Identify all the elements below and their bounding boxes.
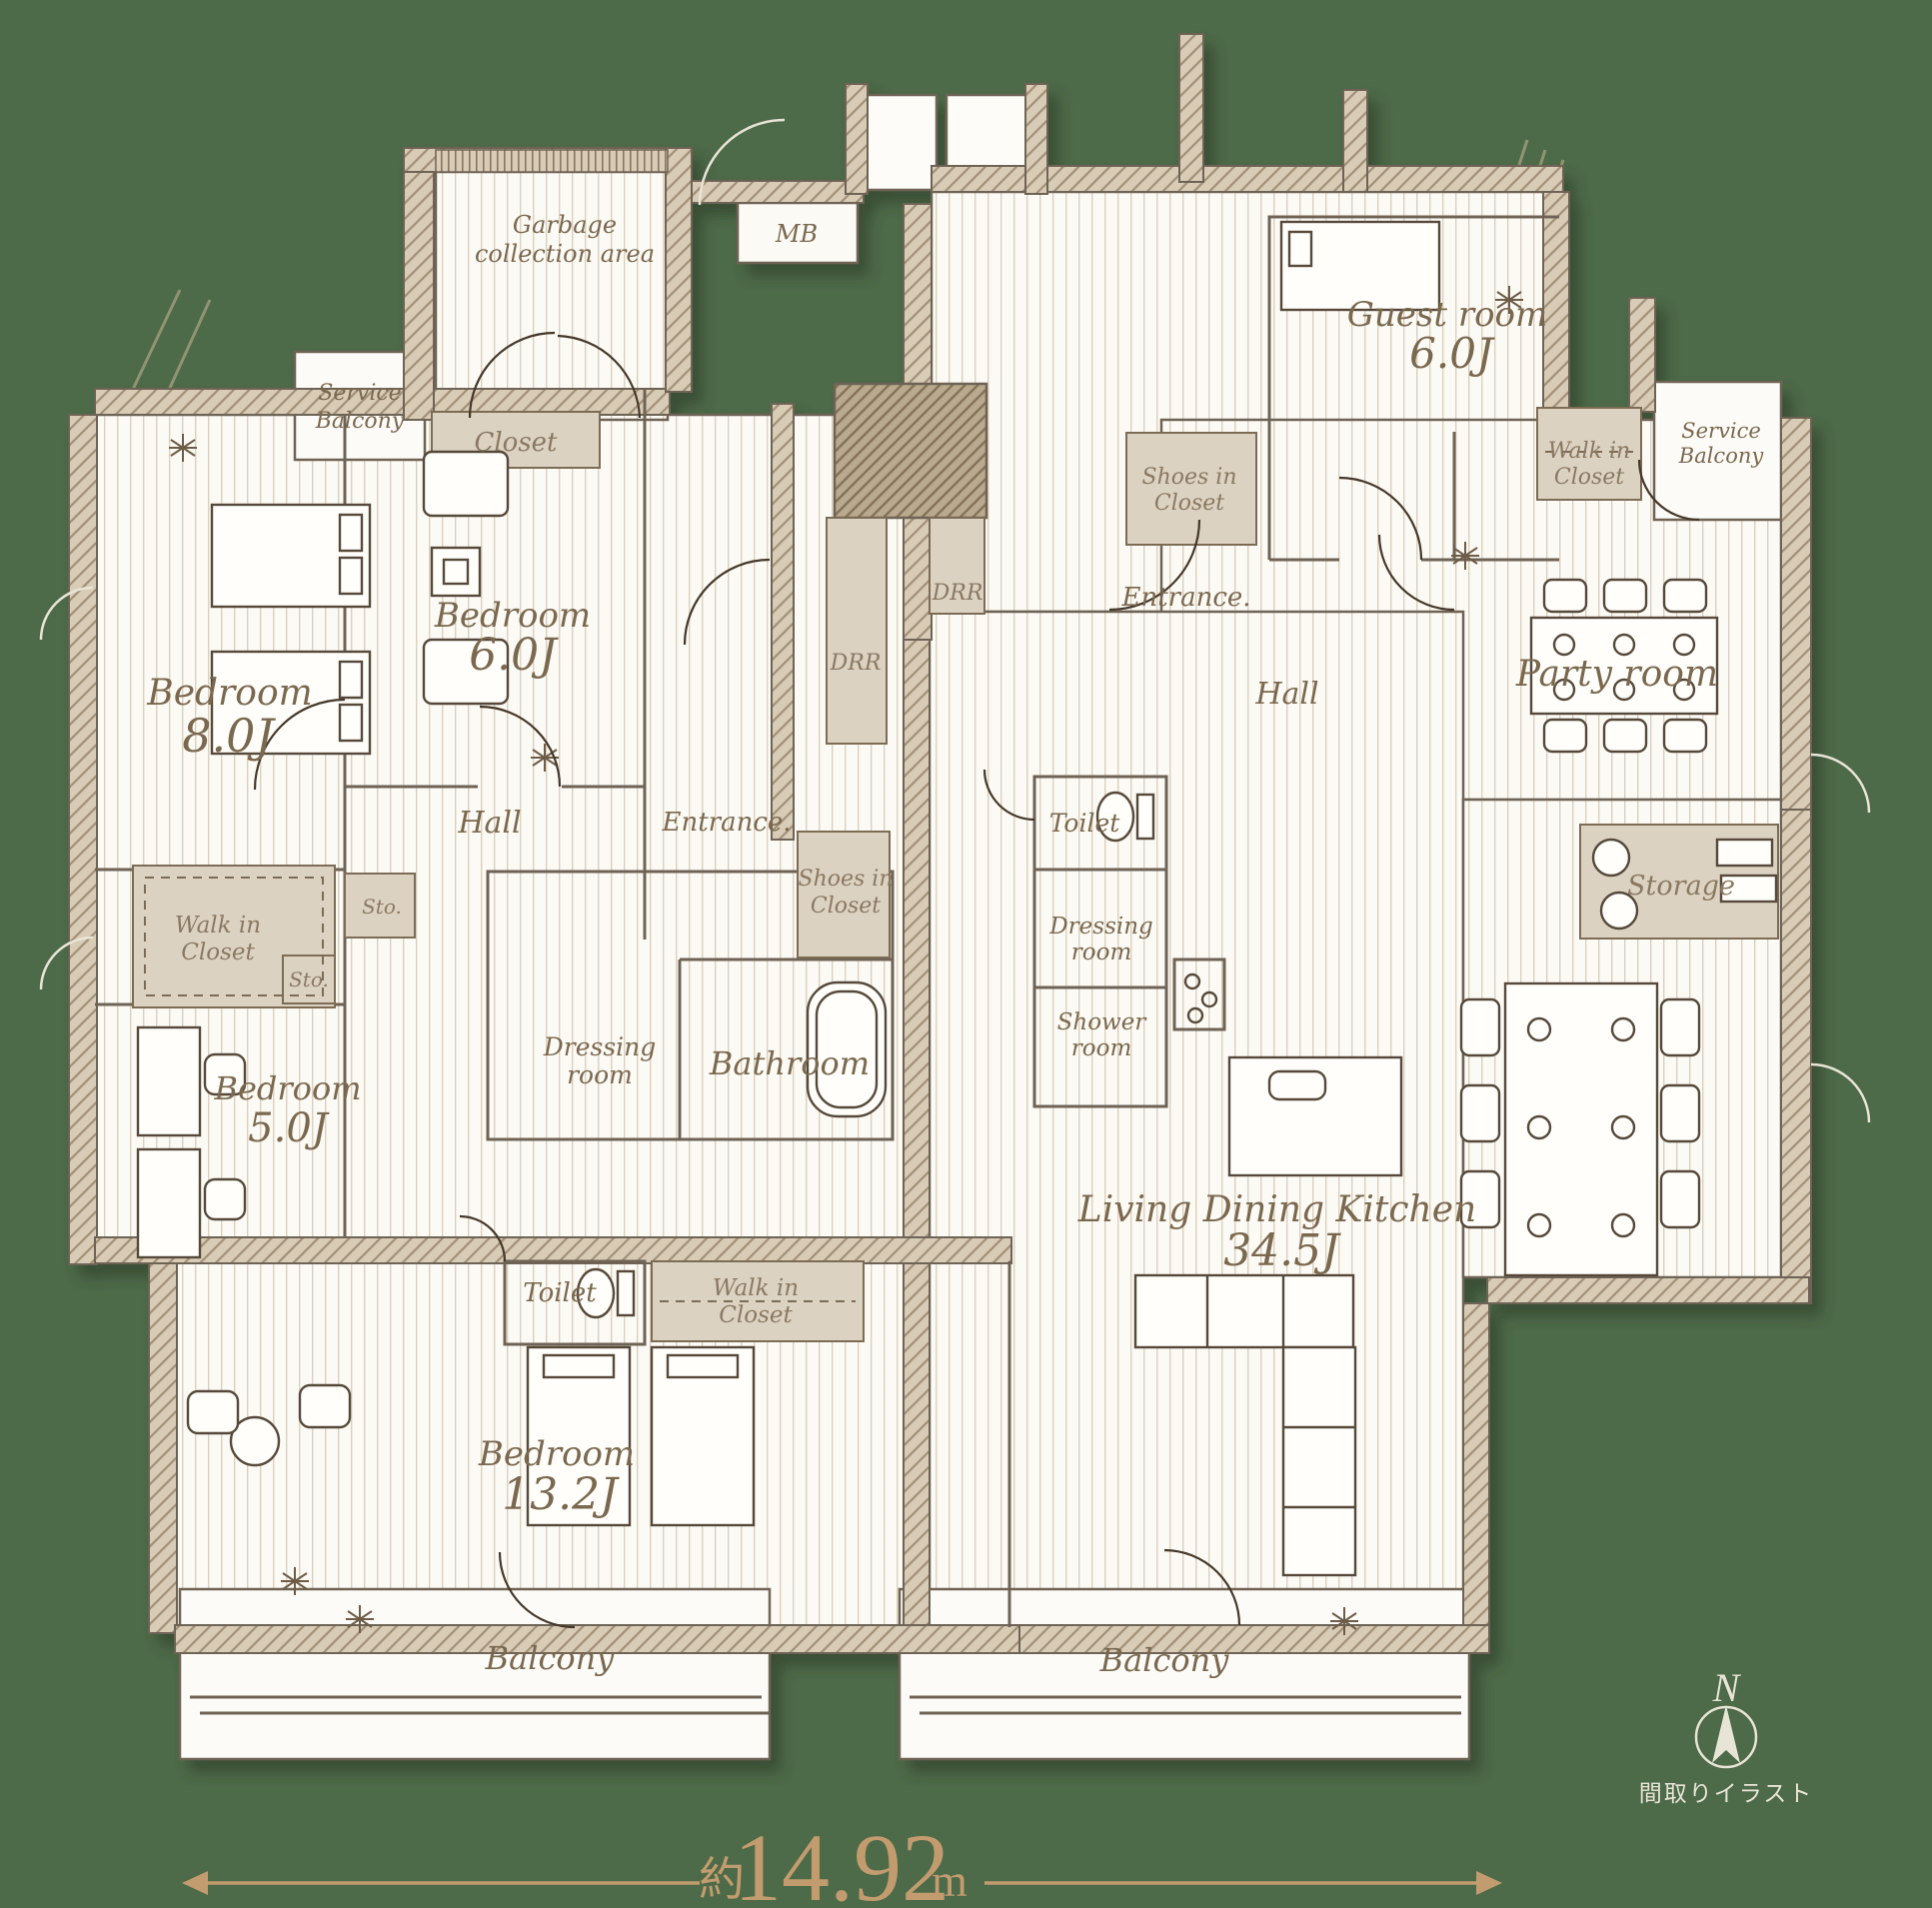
wall-stub — [1179, 34, 1203, 182]
wall — [692, 181, 864, 203]
drr-1-box — [827, 518, 887, 744]
wall — [1463, 1303, 1489, 1633]
pillow-guest-room — [1289, 232, 1311, 266]
label-bedroom5-name: Bedroom — [213, 1069, 361, 1107]
wall — [772, 404, 794, 840]
wall — [1781, 418, 1811, 810]
label-hall-left: Hall — [457, 806, 521, 841]
label-dressing-right-1: Dressing — [1048, 914, 1153, 940]
kitchen-island — [1229, 1057, 1401, 1175]
label-shoes-left-2: Closet — [811, 894, 881, 919]
label-garbage-line2: collection area — [475, 240, 655, 268]
wall-stub — [1343, 90, 1367, 192]
label-drr-2: DRR — [932, 581, 983, 606]
floor-plan-illustration: Garbage collection area MB Service Balco… — [0, 0, 1932, 1908]
label-bedroom8-size: 8.0J — [182, 709, 276, 763]
label-bedroom13-size: 13.2J — [502, 1469, 620, 1520]
label-hall-right: Hall — [1254, 677, 1318, 712]
wall-stub — [846, 84, 868, 194]
label-ldk-name: Living Dining Kitchen — [1077, 1189, 1476, 1230]
label-balcony-left: Balcony — [485, 1639, 616, 1677]
label-wic-bottom-1: Walk in — [713, 1275, 799, 1301]
wall — [666, 148, 692, 392]
compass-north-label: N — [1712, 1665, 1742, 1710]
label-shower-room-2: room — [1071, 1035, 1132, 1061]
floor-balcony-left — [180, 1589, 770, 1759]
label-sto-2: Sto. — [289, 967, 329, 991]
wall — [95, 1237, 1011, 1263]
label-drr-1: DRR — [830, 651, 882, 676]
label-storage: Storage — [1627, 871, 1735, 902]
dimension-unit: m — [932, 1855, 967, 1906]
label-shoes-right-2: Closet — [1154, 491, 1224, 516]
label-wic-right-2: Closet — [1554, 465, 1624, 490]
label-toilet-left: Toilet — [523, 1278, 597, 1308]
wall-stub — [1025, 84, 1047, 194]
label-entrance-left: Entrance. — [661, 808, 791, 838]
label-shoes-right-1: Shoes in — [1142, 465, 1237, 490]
railing-garbage-area — [436, 150, 668, 172]
wall — [904, 640, 930, 1631]
label-dressing-left-2: room — [567, 1060, 633, 1089]
label-bathroom: Bathroom — [709, 1044, 870, 1082]
floor-garbage-area — [436, 172, 668, 420]
label-service-balcony-left-1: Service — [318, 381, 401, 406]
label-dressing-right-2: room — [1071, 940, 1132, 965]
label-wic-left-1: Walk in — [175, 913, 261, 939]
label-dressing-left-1: Dressing — [543, 1032, 657, 1061]
label-service-balcony-right-2: Balcony — [1678, 444, 1765, 468]
label-balcony-right: Balcony — [1099, 1641, 1230, 1679]
label-wic-left-2: Closet — [181, 940, 255, 965]
label-mb: MB — [775, 220, 818, 248]
label-entrance-right: Entrance. — [1120, 583, 1250, 613]
label-sto-1: Sto. — [362, 895, 402, 919]
label-wic-bottom-2: Closet — [719, 1302, 793, 1328]
label-bedroom13-name: Bedroom — [478, 1434, 635, 1474]
label-closet-left: Closet — [474, 428, 558, 458]
label-shower-room-1: Shower — [1057, 1009, 1148, 1035]
label-toilet-right: Toilet — [1049, 809, 1121, 838]
label-bedroom8-name: Bedroom — [146, 673, 313, 714]
label-ldk-size: 34.5J — [1223, 1225, 1341, 1276]
floor-plan-svg: Garbage collection area MB Service Balco… — [0, 0, 1932, 1908]
label-wic-right-1: Walk in — [1548, 439, 1630, 464]
wall — [404, 148, 434, 420]
wall — [69, 415, 97, 1264]
wall — [1487, 1277, 1809, 1303]
wall — [1781, 810, 1811, 1303]
label-shoes-left-1: Shoes in — [799, 867, 894, 892]
dimension-value: 14.92 — [734, 1814, 950, 1908]
structural-core-block — [835, 384, 986, 518]
label-party-room: Party room — [1515, 654, 1718, 695]
label-garbage-line1: Garbage — [513, 211, 617, 239]
label-service-balcony-right-1: Service — [1681, 419, 1761, 443]
plan-caption: 間取りイラスト — [1639, 1781, 1814, 1807]
wall — [149, 1263, 177, 1633]
wall — [1629, 298, 1655, 412]
label-guest-room-size: 6.0J — [1409, 329, 1495, 378]
label-bedroom5-size: 5.0J — [248, 1105, 330, 1151]
label-bedroom6-size: 6.0J — [469, 630, 559, 681]
label-service-balcony-left-2: Balcony — [315, 409, 405, 434]
